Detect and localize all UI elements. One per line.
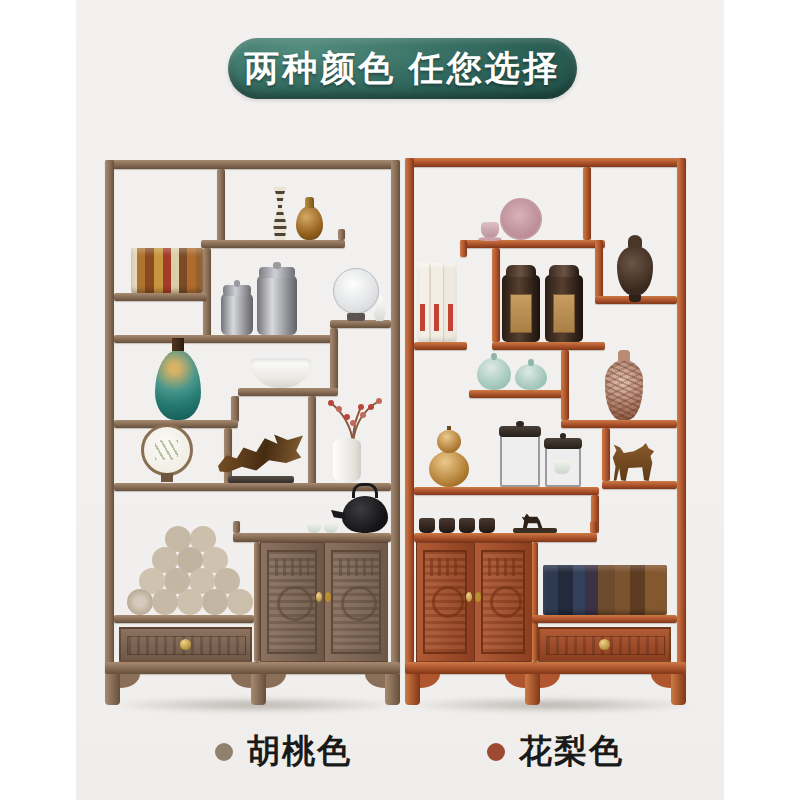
cabinet-door-left <box>260 542 324 662</box>
deer-figurine <box>519 512 545 528</box>
apron-bracket <box>231 674 251 688</box>
stacked-scrolls <box>127 589 153 615</box>
shelf-bar <box>114 293 207 301</box>
shelf-bar <box>114 483 391 491</box>
frame-bar <box>105 662 400 674</box>
shelf-bar <box>561 350 569 420</box>
celadon-jar <box>477 358 511 390</box>
celadon-jar <box>515 364 547 390</box>
horse-figurine <box>610 443 656 481</box>
frame-bar <box>677 158 686 674</box>
counter-shelf <box>233 533 391 542</box>
frame-bar <box>105 160 400 169</box>
drawer <box>538 627 671 662</box>
cabinet-foot <box>105 674 120 705</box>
shelf-bar <box>330 328 338 390</box>
shelf-bar <box>469 390 569 398</box>
shelf-bar <box>492 342 605 350</box>
legend-walnut: 胡桃色 <box>215 729 352 774</box>
striped-vase <box>268 187 292 240</box>
cabinet-foot <box>251 674 266 705</box>
book-row <box>131 248 203 293</box>
frame-bar <box>405 158 414 674</box>
white-scroll-books <box>417 263 457 342</box>
shelf-bar <box>338 229 345 240</box>
glass-fan-disc <box>333 268 379 314</box>
round-fan <box>141 424 193 476</box>
black-teapot <box>342 496 388 533</box>
shelf-bar <box>217 169 225 242</box>
counter-shelf <box>414 533 597 542</box>
pink-plate <box>500 198 542 240</box>
walnut-color-swatch <box>215 743 233 761</box>
teacup <box>307 522 321 533</box>
cabinet-foot <box>671 674 686 705</box>
tea-tin <box>545 275 583 342</box>
carved-panel <box>331 550 381 654</box>
sculpture-plinth <box>228 476 294 483</box>
patterned-vase <box>605 360 643 420</box>
frame-bar <box>405 158 686 167</box>
white-vase <box>333 438 361 483</box>
shelf-bar <box>561 420 677 428</box>
shelf-bar <box>595 240 603 298</box>
apron-bracket <box>420 674 440 688</box>
pink-cup <box>481 222 499 238</box>
book-row <box>543 565 667 615</box>
black-teacup <box>479 518 495 533</box>
black-teacup <box>419 518 435 533</box>
white-cup <box>554 460 570 474</box>
walnut-cabinet <box>105 160 400 705</box>
frame-bar <box>105 160 114 674</box>
apron-bracket <box>540 674 560 688</box>
shelf-bar <box>414 487 599 495</box>
shelf-bar <box>330 320 391 328</box>
white-bowl <box>251 358 311 388</box>
cabinet-door-left <box>416 542 474 662</box>
rosewood-color-swatch <box>487 743 505 761</box>
bronze-censer <box>617 246 653 296</box>
frame-bar <box>405 662 686 674</box>
carved-panel <box>423 550 467 654</box>
walnut-color-label: 胡桃色 <box>247 729 352 774</box>
carved-panel <box>267 550 317 654</box>
drawer-shelf <box>532 615 677 623</box>
rosewood-cabinet <box>405 158 686 705</box>
shelf-bar <box>460 240 605 248</box>
cabinet-foot <box>405 674 420 705</box>
shelf-bar <box>583 167 591 240</box>
golden-gourd-vase <box>429 451 469 487</box>
drawer-shelf <box>114 615 254 623</box>
frame-bar <box>391 160 400 674</box>
door-knobs <box>466 592 472 602</box>
shelf-bar <box>201 240 345 248</box>
black-teacup <box>439 518 455 533</box>
tea-tin <box>502 275 540 342</box>
shelf-bar <box>308 396 316 485</box>
apron-bracket <box>651 674 671 688</box>
legend-rosewood: 花梨色 <box>487 729 624 774</box>
title-banner: 两种颜色 任您选择 <box>228 38 577 99</box>
cabinet-foot <box>525 674 540 705</box>
shelf-bar <box>233 521 240 533</box>
tea-caddy-small <box>221 293 253 335</box>
shelf-bar <box>114 335 338 343</box>
rosewood-color-label: 花梨色 <box>519 729 624 774</box>
shelf-bar <box>492 248 500 342</box>
shelf-bar <box>414 342 467 350</box>
shelf-bar <box>602 428 610 481</box>
apron-bracket <box>266 674 286 688</box>
apron-bracket <box>505 674 525 688</box>
apron-bracket <box>365 674 385 688</box>
cabinet-door-right <box>474 542 532 662</box>
teacup <box>324 522 338 533</box>
amber-vase <box>296 206 323 240</box>
banner-text: 两种颜色 任您选择 <box>244 45 561 92</box>
cabinet-door-right <box>324 542 388 662</box>
shelf-bar <box>590 521 597 533</box>
cabinet-foot <box>385 674 400 705</box>
shelf-bar <box>231 396 239 422</box>
black-teacup <box>459 518 475 533</box>
product-photo-area: 两种颜色 任您选择 <box>76 0 724 800</box>
berry-branch <box>323 395 387 443</box>
apron-bracket <box>120 674 140 688</box>
turquoise-vase <box>155 350 201 420</box>
tea-caddy-large <box>257 275 297 335</box>
figurine-tray <box>513 528 557 533</box>
door-knobs <box>316 592 322 602</box>
drawer <box>119 627 252 662</box>
shelf-bar <box>460 240 467 257</box>
shelf-bar <box>602 481 677 489</box>
display-case <box>500 435 540 487</box>
carved-panel <box>481 550 525 654</box>
